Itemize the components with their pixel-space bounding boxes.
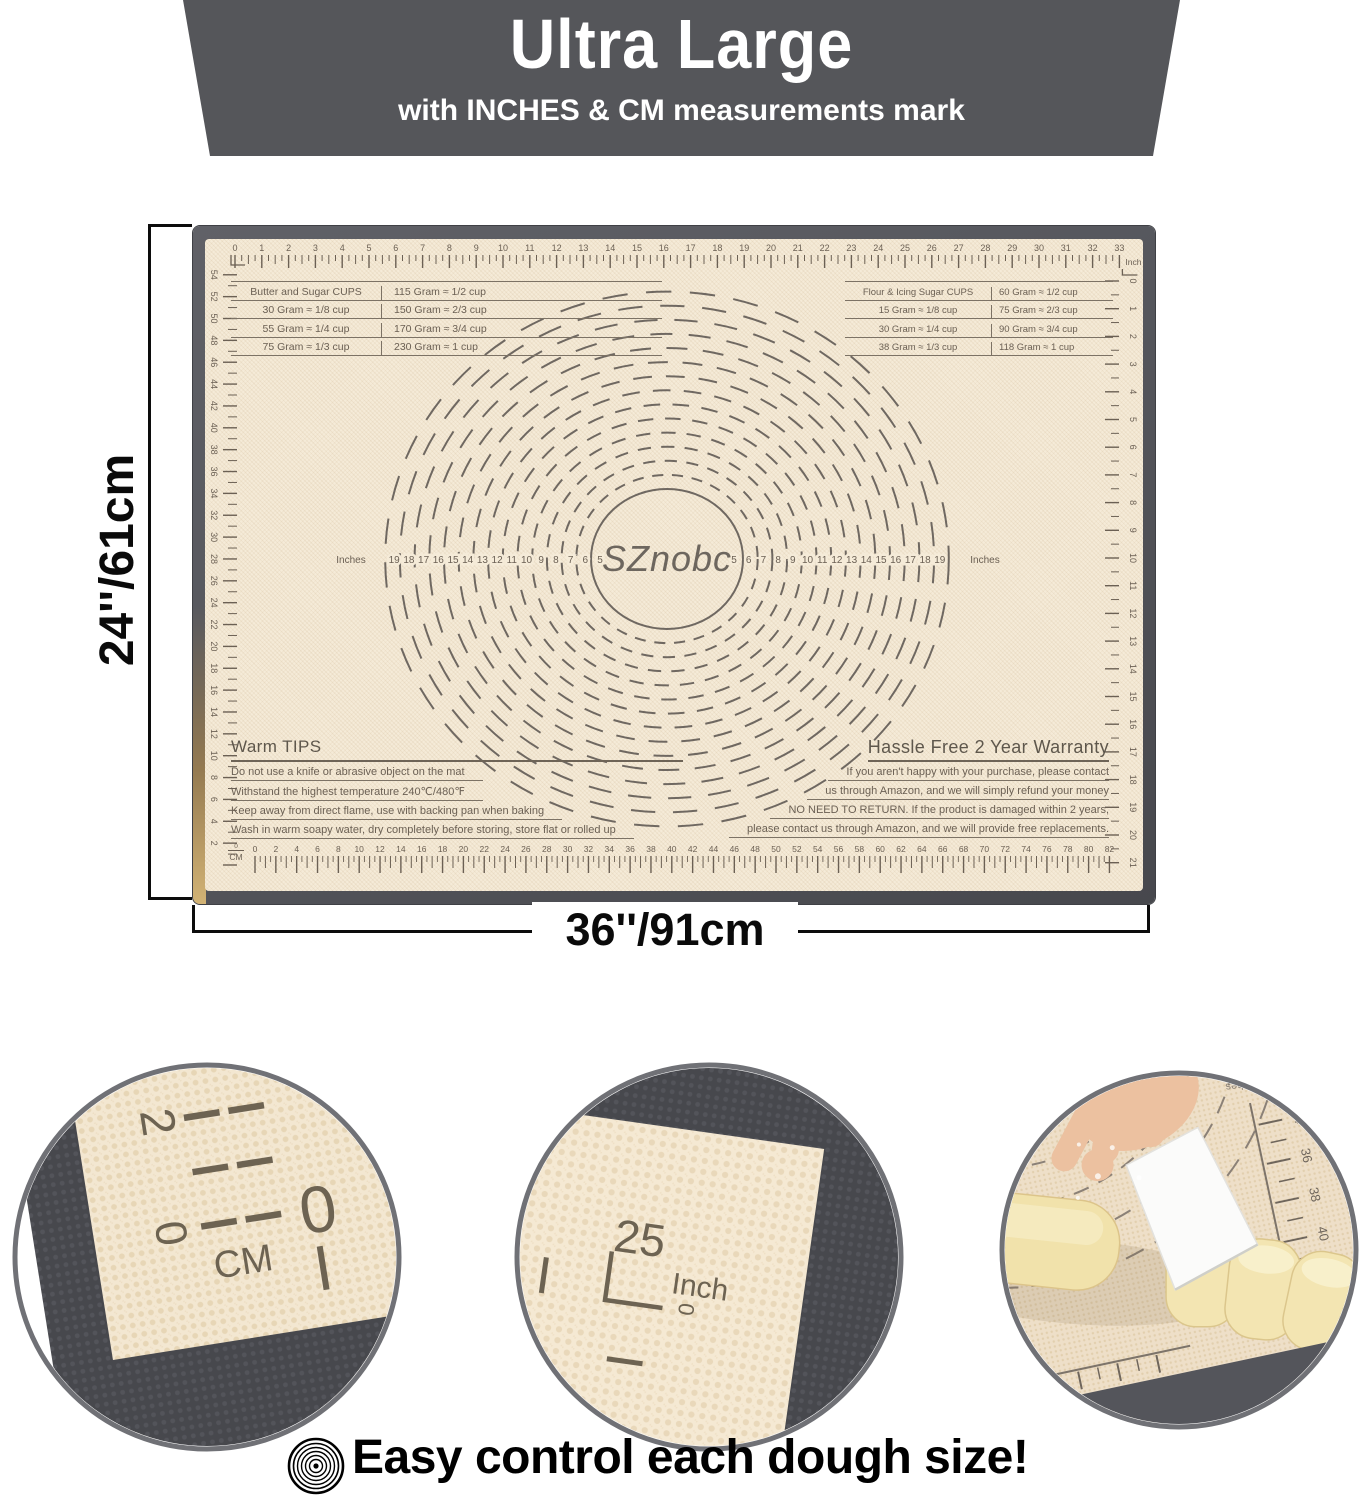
warranty: Hassle Free 2 Year Warranty If you aren'… <box>609 737 1109 838</box>
svg-text:18: 18 <box>438 844 448 854</box>
svg-text:5: 5 <box>366 243 371 253</box>
svg-text:10: 10 <box>1128 553 1138 563</box>
svg-text:14: 14 <box>396 844 406 854</box>
table-cell: 75 Gram ≈ 2/3 cup <box>991 305 1113 318</box>
svg-text:8: 8 <box>1128 500 1138 505</box>
svg-text:7: 7 <box>420 243 425 253</box>
svg-text:27: 27 <box>954 243 964 253</box>
flour-sugar-conversion-table: Flour & Icing Sugar CUPS 60 Gram ≈ 1/2 c… <box>845 281 1113 356</box>
table-row: Butter and Sugar CUPS 115 Gram ≈ 1/2 cup <box>231 282 662 301</box>
table-cell: 30 Gram ≈ 1/8 cup <box>231 304 381 318</box>
detail-circle-inch-corner: 25 Inch 0 <box>510 1058 908 1456</box>
svg-text:16: 16 <box>433 555 445 566</box>
table-row: 15 Gram ≈ 1/8 cup 75 Gram ≈ 2/3 cup <box>845 301 1113 320</box>
table-cell: 90 Gram ≈ 3/4 cup <box>991 324 1113 337</box>
svg-text:28: 28 <box>542 844 552 854</box>
svg-text:8: 8 <box>775 555 781 566</box>
svg-text:1: 1 <box>1128 306 1138 311</box>
butter-sugar-conversion-table: Butter and Sugar CUPS 115 Gram ≈ 1/2 cup… <box>231 281 662 356</box>
warm-tips-line: Withstand the highest temperature 240℃/4… <box>231 781 483 801</box>
product-image-page: Ultra Large with INCHES & CM measurement… <box>0 0 1361 1500</box>
svg-text:8: 8 <box>553 555 559 566</box>
svg-text:8: 8 <box>209 775 219 780</box>
svg-text:1: 1 <box>259 243 264 253</box>
svg-text:14: 14 <box>462 555 474 566</box>
svg-text:16: 16 <box>1128 719 1138 729</box>
inch-25-label: 25 <box>611 1209 669 1268</box>
table-cell: 115 Gram ≈ 1/2 cup <box>381 286 662 300</box>
table-row: Flour & Icing Sugar CUPS 60 Gram ≈ 1/2 c… <box>845 282 1113 301</box>
svg-text:50: 50 <box>209 313 219 323</box>
svg-text:18: 18 <box>209 663 219 673</box>
svg-text:17: 17 <box>1128 747 1138 757</box>
rings-unit-left: Inches <box>336 555 365 566</box>
svg-text:19: 19 <box>934 555 946 566</box>
svg-text:20: 20 <box>209 641 219 651</box>
svg-text:68: 68 <box>959 844 969 854</box>
svg-text:5: 5 <box>1042 1405 1058 1415</box>
svg-text:29: 29 <box>1007 243 1017 253</box>
table-cell: 30 Gram ≈ 1/4 cup <box>845 324 991 337</box>
svg-text:22: 22 <box>209 620 219 630</box>
width-dimension-label: 36''/91cm <box>532 902 798 958</box>
svg-text:4: 4 <box>294 844 299 854</box>
table-row: 38 Gram ≈ 1/3 cup 118 Gram ≈ 1 cup <box>845 338 1113 357</box>
svg-text:14: 14 <box>605 243 615 253</box>
svg-text:7: 7 <box>761 555 767 566</box>
svg-text:14: 14 <box>861 555 873 566</box>
svg-text:42: 42 <box>688 844 698 854</box>
table-row: 30 Gram ≈ 1/4 cup 90 Gram ≈ 3/4 cup <box>845 319 1113 338</box>
svg-text:11: 11 <box>525 243 534 253</box>
svg-text:6: 6 <box>583 555 589 566</box>
height-dimension-cap-bottom <box>148 897 192 900</box>
warranty-line: us through Amazon, and we will simply re… <box>807 781 1109 800</box>
height-dimension-line <box>148 224 151 900</box>
svg-text:36: 36 <box>1298 1147 1316 1164</box>
svg-text:0: 0 <box>234 843 238 850</box>
svg-text:78: 78 <box>1063 844 1073 854</box>
svg-text:26: 26 <box>521 844 531 854</box>
top-inch-ruler: 0123456789101112131415161718192021222324… <box>205 239 1143 279</box>
svg-text:4: 4 <box>340 243 345 253</box>
svg-text:18: 18 <box>920 555 932 566</box>
svg-text:44: 44 <box>709 844 719 854</box>
svg-text:11: 11 <box>817 555 828 566</box>
svg-text:9: 9 <box>538 555 544 566</box>
svg-text:16: 16 <box>209 685 219 695</box>
svg-text:13: 13 <box>846 555 858 566</box>
svg-text:6: 6 <box>1003 1414 1019 1424</box>
warranty-line: If you aren't happy with your purchase, … <box>828 762 1109 781</box>
table-cell: 150 Gram ≈ 2/3 cup <box>381 304 662 318</box>
warranty-line: please contact us through Amazon, and we… <box>729 819 1109 838</box>
svg-text:46: 46 <box>209 357 219 367</box>
svg-text:7: 7 <box>1128 472 1138 477</box>
svg-text:12: 12 <box>375 844 385 854</box>
svg-text:26: 26 <box>209 576 219 586</box>
svg-text:72: 72 <box>1001 844 1011 854</box>
svg-text:21: 21 <box>793 243 803 253</box>
svg-text:6: 6 <box>746 555 752 566</box>
svg-text:70: 70 <box>980 844 990 854</box>
svg-text:17: 17 <box>418 555 430 566</box>
svg-text:14: 14 <box>209 707 219 717</box>
svg-text:17: 17 <box>905 555 917 566</box>
svg-text:10: 10 <box>209 751 219 761</box>
table-row: 30 Gram ≈ 1/8 cup 150 Gram ≈ 2/3 cup <box>231 301 662 320</box>
svg-text:6: 6 <box>209 797 219 802</box>
detail-circle-dough-photo: Inches 343638404244 23456 <box>995 1066 1361 1434</box>
svg-text:40: 40 <box>667 844 677 854</box>
svg-text:50: 50 <box>771 844 781 854</box>
table-row: 75 Gram ≈ 1/3 cup 230 Gram ≈ 1 cup <box>231 338 662 357</box>
banner: Ultra Large with INCHES & CM measurement… <box>183 0 1180 156</box>
svg-text:40: 40 <box>1314 1225 1332 1242</box>
svg-text:62: 62 <box>896 844 906 854</box>
svg-text:5: 5 <box>1128 417 1138 422</box>
svg-text:16: 16 <box>417 844 427 854</box>
svg-text:28: 28 <box>209 554 219 564</box>
detail-circle-cm-corner: 2 0 CM 0 <box>8 1058 406 1456</box>
svg-text:8: 8 <box>447 243 452 253</box>
table-cell: Flour & Icing Sugar CUPS <box>845 287 991 300</box>
svg-text:54: 54 <box>209 270 219 280</box>
svg-text:40: 40 <box>209 423 219 433</box>
svg-text:17: 17 <box>686 243 696 253</box>
svg-text:22: 22 <box>480 844 490 854</box>
table-cell: 170 Gram ≈ 3/4 cup <box>381 323 662 337</box>
table-cell: 230 Gram ≈ 1 cup <box>381 341 662 355</box>
table-cell: 60 Gram ≈ 1/2 cup <box>991 287 1113 300</box>
svg-text:15: 15 <box>875 555 887 566</box>
svg-text:54: 54 <box>813 844 823 854</box>
svg-text:26: 26 <box>927 243 937 253</box>
svg-text:15: 15 <box>632 243 642 253</box>
banner-subtitle: with INCHES & CM measurements mark <box>183 90 1180 132</box>
svg-text:24: 24 <box>209 598 219 608</box>
cm-corner-photo: 2 0 CM 0 <box>8 1058 406 1456</box>
svg-text:7: 7 <box>568 555 574 566</box>
table-cell: 55 Gram ≈ 1/4 cup <box>231 323 381 337</box>
svg-text:19: 19 <box>1128 802 1138 812</box>
warranty-title: Hassle Free 2 Year Warranty <box>868 737 1109 762</box>
svg-text:3: 3 <box>313 243 318 253</box>
table-cell: Butter and Sugar CUPS <box>231 286 381 300</box>
svg-text:9: 9 <box>474 243 479 253</box>
svg-text:30: 30 <box>1034 243 1044 253</box>
height-dimension-cap-top <box>148 224 192 227</box>
brand-logo: SZnobc <box>602 538 732 579</box>
svg-text:38: 38 <box>646 844 656 854</box>
svg-text:2: 2 <box>273 844 278 854</box>
svg-text:46: 46 <box>730 844 740 854</box>
svg-text:6: 6 <box>1128 445 1138 450</box>
svg-text:66: 66 <box>938 844 948 854</box>
svg-text:58: 58 <box>855 844 865 854</box>
baking-mat: 5566778899101011111212131314141515161617… <box>193 226 1155 904</box>
width-dimension-cap-left <box>192 905 195 933</box>
svg-text:34: 34 <box>209 488 219 498</box>
svg-text:16: 16 <box>659 243 669 253</box>
svg-text:60: 60 <box>875 844 885 854</box>
svg-text:10: 10 <box>498 243 508 253</box>
svg-text:38: 38 <box>1306 1186 1324 1203</box>
width-dimension-cap-right <box>1147 905 1150 933</box>
svg-text:CM: CM <box>229 852 242 862</box>
svg-text:80: 80 <box>1084 844 1094 854</box>
svg-text:11: 11 <box>507 555 518 566</box>
svg-text:74: 74 <box>1021 844 1031 854</box>
svg-text:56: 56 <box>834 844 844 854</box>
svg-text:24: 24 <box>500 844 510 854</box>
height-dimension-label: 24''/61cm <box>91 350 145 770</box>
svg-text:4: 4 <box>1128 389 1138 394</box>
table-cell: 38 Gram ≈ 1/3 cup <box>845 342 991 355</box>
table-cell: 118 Gram ≈ 1 cup <box>991 342 1113 355</box>
svg-text:10: 10 <box>521 555 533 566</box>
svg-text:10: 10 <box>354 844 364 854</box>
svg-text:36: 36 <box>625 844 635 854</box>
footer-caption: Easy control each dough size! <box>352 1430 1028 1485</box>
warranty-line: NO NEED TO RETURN. If the product is dam… <box>770 800 1109 819</box>
inch-corner-photo: 25 Inch 0 <box>510 1058 908 1456</box>
svg-text:28: 28 <box>980 243 990 253</box>
svg-text:10: 10 <box>802 555 814 566</box>
svg-text:18: 18 <box>403 555 415 566</box>
svg-text:14: 14 <box>1128 664 1138 674</box>
bottom-cm-ruler: 0CM0246810121416182022242628303234363840… <box>205 839 1143 891</box>
svg-text:31: 31 <box>1061 243 1071 253</box>
table-cell: 15 Gram ≈ 1/8 cup <box>845 305 991 318</box>
svg-text:30: 30 <box>563 844 573 854</box>
svg-text:44: 44 <box>209 379 219 389</box>
warm-tips-line: Do not use a knife or abrasive object on… <box>231 762 483 781</box>
rings-unit-right: Inches <box>970 555 999 566</box>
svg-text:32: 32 <box>209 510 219 520</box>
svg-text:82: 82 <box>1105 844 1115 854</box>
svg-text:34: 34 <box>605 844 615 854</box>
svg-text:20: 20 <box>766 243 776 253</box>
svg-text:8: 8 <box>336 844 341 854</box>
svg-text:0: 0 <box>1128 278 1138 283</box>
svg-text:64: 64 <box>917 844 927 854</box>
svg-text:76: 76 <box>1042 844 1052 854</box>
svg-text:15: 15 <box>1128 691 1138 701</box>
svg-text:19: 19 <box>739 243 749 253</box>
svg-text:52: 52 <box>209 292 219 302</box>
svg-text:12: 12 <box>209 729 219 739</box>
svg-text:12: 12 <box>831 555 843 566</box>
svg-text:42: 42 <box>209 401 219 411</box>
svg-text:5: 5 <box>731 555 737 566</box>
svg-text:13: 13 <box>1128 636 1138 646</box>
svg-text:0: 0 <box>253 844 258 854</box>
svg-text:23: 23 <box>846 243 856 253</box>
svg-text:9: 9 <box>1128 528 1138 533</box>
svg-text:2: 2 <box>286 243 291 253</box>
mat-surface: 5566778899101011111212131314141515161617… <box>205 239 1143 891</box>
svg-text:18: 18 <box>1128 775 1138 785</box>
dough-photo: Inches 343638404244 23456 <box>995 1066 1361 1434</box>
svg-text:4: 4 <box>209 819 219 824</box>
svg-text:3: 3 <box>1128 362 1138 367</box>
svg-text:52: 52 <box>792 844 802 854</box>
svg-text:11: 11 <box>1128 581 1138 590</box>
svg-text:12: 12 <box>552 243 562 253</box>
svg-text:48: 48 <box>209 335 219 345</box>
banner-title: Ultra Large <box>183 0 1180 95</box>
svg-text:30: 30 <box>209 532 219 542</box>
svg-text:25: 25 <box>900 243 910 253</box>
svg-text:2: 2 <box>1128 334 1138 339</box>
svg-text:12: 12 <box>492 555 504 566</box>
svg-text:24: 24 <box>873 243 883 253</box>
svg-text:6: 6 <box>315 844 320 854</box>
svg-text:32: 32 <box>1088 243 1098 253</box>
table-cell: 75 Gram ≈ 1/3 cup <box>231 341 381 355</box>
svg-text:18: 18 <box>712 243 722 253</box>
svg-text:13: 13 <box>578 243 588 253</box>
svg-text:48: 48 <box>750 844 760 854</box>
svg-text:6: 6 <box>393 243 398 253</box>
svg-text:19: 19 <box>389 555 401 566</box>
svg-text:12: 12 <box>1128 608 1138 618</box>
svg-text:13: 13 <box>477 555 489 566</box>
svg-text:20: 20 <box>459 844 469 854</box>
svg-text:9: 9 <box>790 555 796 566</box>
warm-tips-line: Wash in warm soapy water, dry completely… <box>231 820 634 839</box>
svg-text:36: 36 <box>209 467 219 477</box>
svg-text:32: 32 <box>584 844 594 854</box>
target-circles-icon <box>286 1436 346 1496</box>
svg-text:15: 15 <box>447 555 459 566</box>
svg-text:38: 38 <box>209 445 219 455</box>
svg-text:16: 16 <box>890 555 902 566</box>
warm-tips-line: Keep away from direct flame, use with ba… <box>231 801 562 820</box>
svg-text:22: 22 <box>820 243 830 253</box>
table-row: 55 Gram ≈ 1/4 cup 170 Gram ≈ 3/4 cup <box>231 319 662 338</box>
